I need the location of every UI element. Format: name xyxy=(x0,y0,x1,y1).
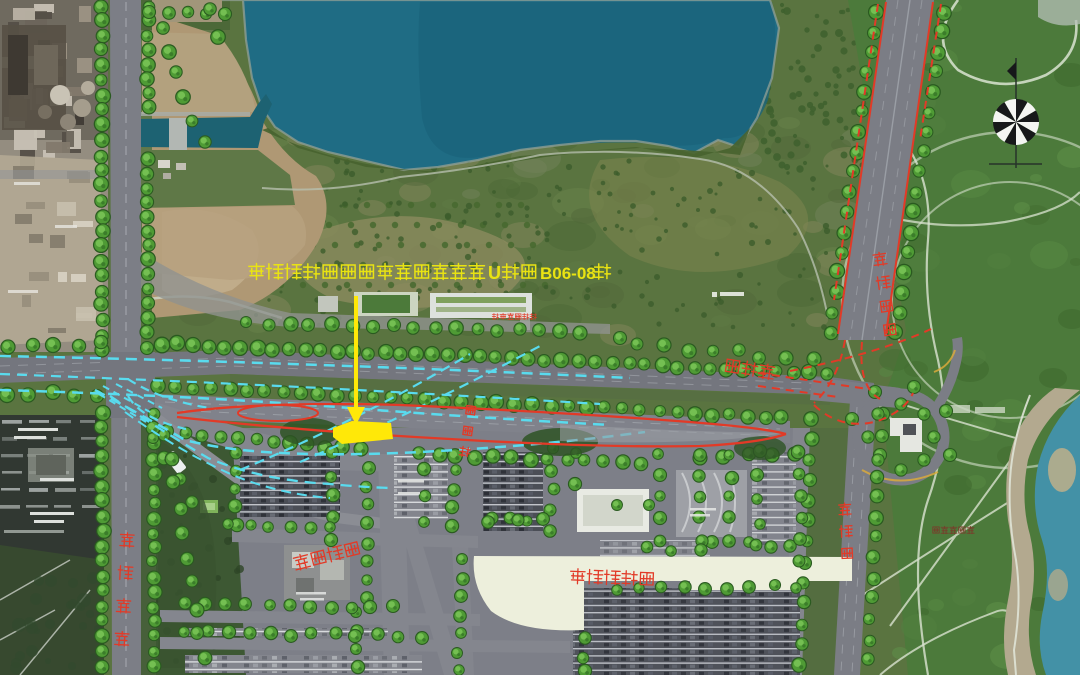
svg-text:B06-08: B06-08 xyxy=(540,264,596,283)
svg-text:U: U xyxy=(488,263,501,283)
